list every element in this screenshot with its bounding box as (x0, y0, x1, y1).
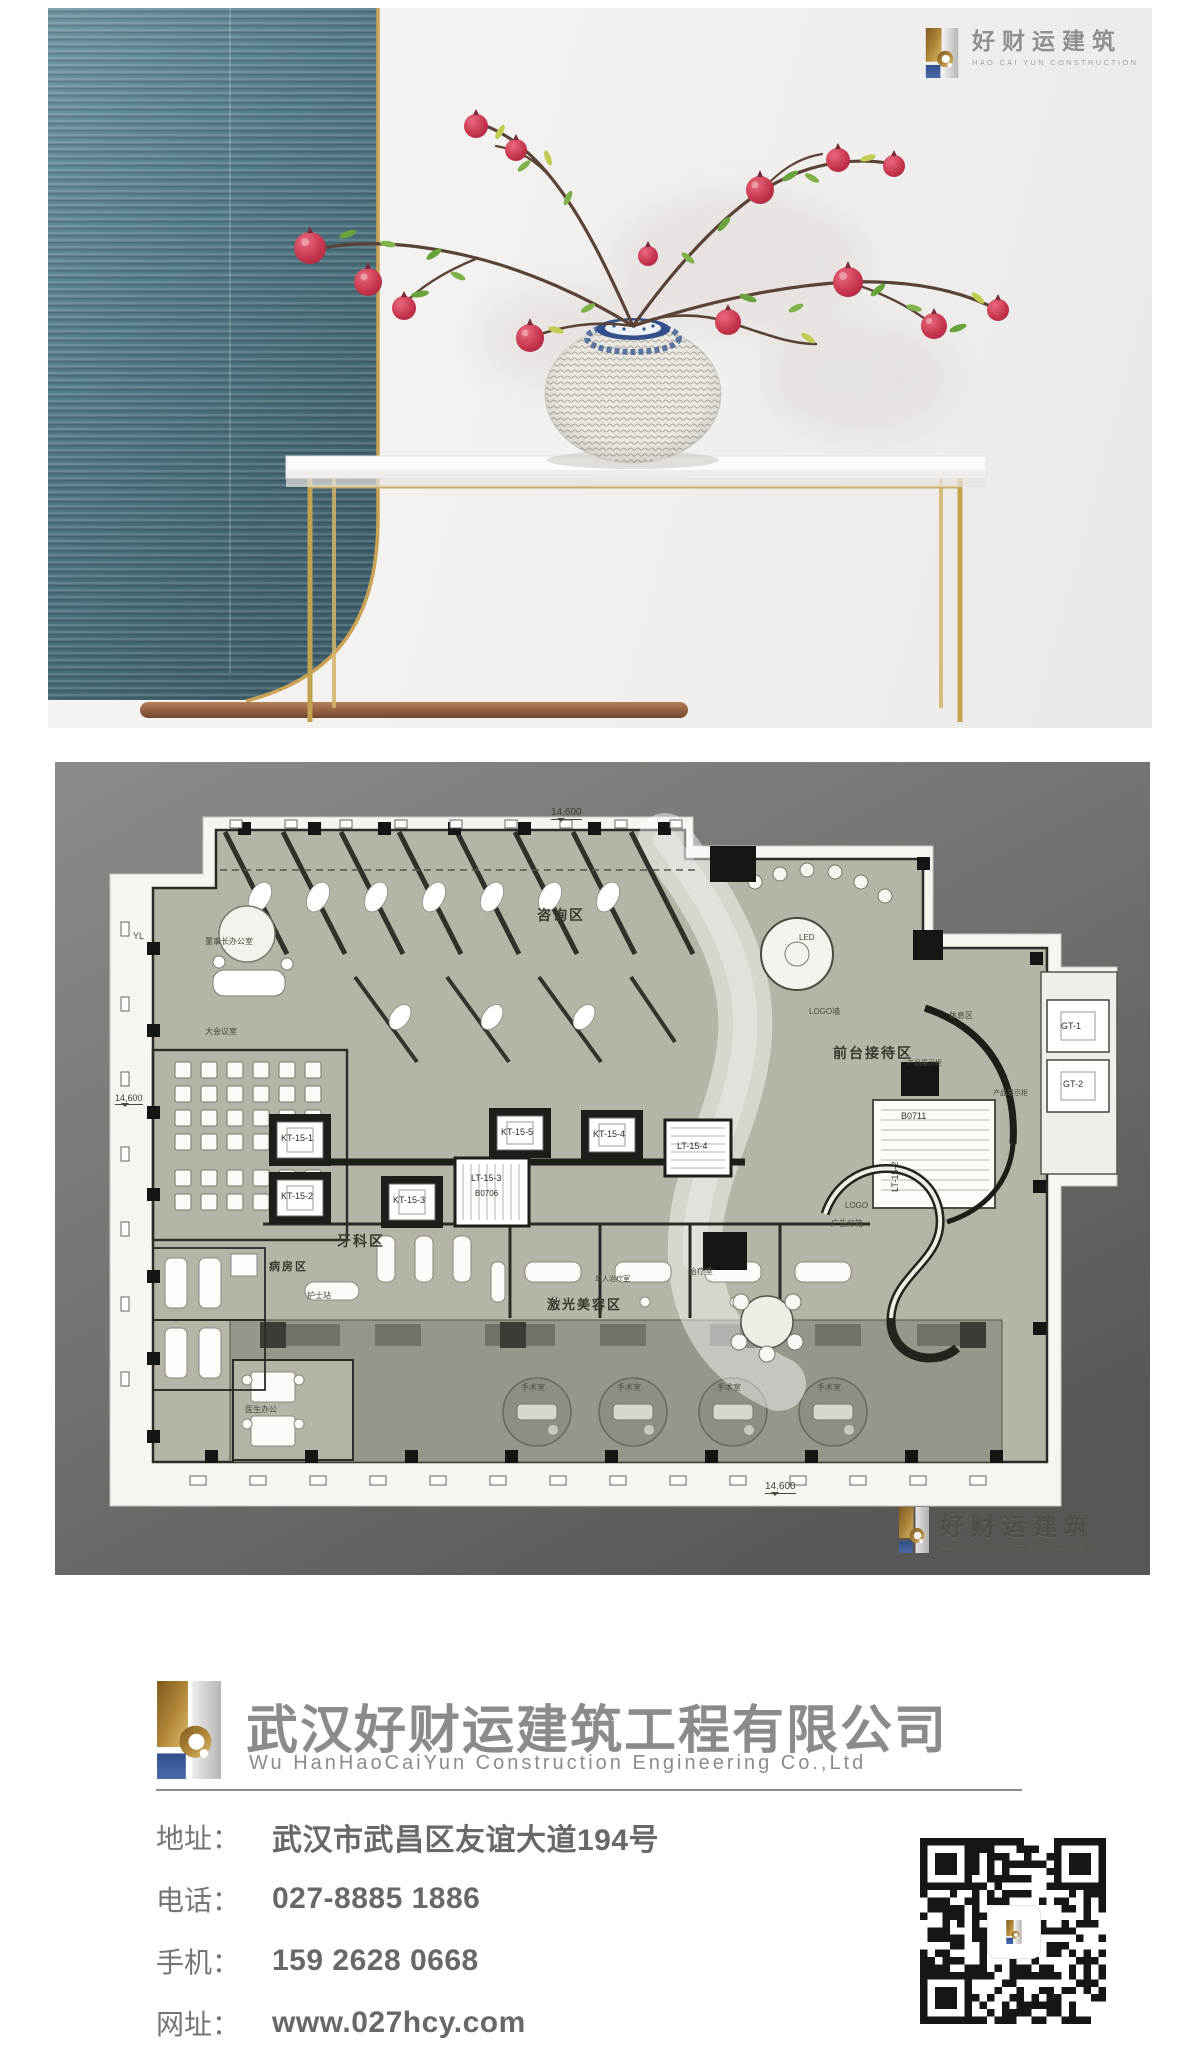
address-label: 地址： (156, 1817, 272, 1857)
plan-label: YL (133, 932, 144, 941)
contact-row-phone: 电话： 027-8885 1886 (156, 1868, 659, 1930)
plan-label: 咨询区 (537, 908, 585, 922)
plan-label: B0711 (901, 1112, 926, 1121)
contact-list: 地址： 武汉市武昌区友谊大道194号 电话： 027-8885 1886 手机：… (156, 1806, 659, 2054)
contact-row-mobile: 手机： 159 2628 0668 (156, 1930, 659, 1992)
plan-label: 手术室 (521, 1384, 545, 1392)
plan-label: KT-15-5 (501, 1128, 533, 1137)
plan-label: KT-15-1 (281, 1134, 313, 1143)
plan-label: 休息区 (949, 1012, 973, 1020)
brand-mark-icon (922, 28, 962, 78)
wechat-qr-code (920, 1838, 1106, 2024)
address-value: 武汉市武昌区友谊大道194号 (272, 1815, 659, 1859)
plan-label: 手术室 (817, 1384, 841, 1392)
plan-label: 大会议室 (205, 1028, 237, 1036)
brand-mark-icon (897, 1507, 931, 1553)
plan-label: 治疗室 (689, 1268, 713, 1276)
plan-label: GT-2 (1063, 1080, 1083, 1089)
plan-label: 广告灯箱 (831, 1220, 863, 1228)
qr-center-logo (987, 1905, 1041, 1959)
header-logo: 好财运建筑 HAO CAI YUN CONSTRUCTION (922, 28, 1138, 78)
plan-watermark-logo: 好财运建筑 HAO CAI YUN CONSTRUCTION (897, 1507, 1095, 1553)
plan-label: KT-15-3 (393, 1196, 425, 1205)
plan-label: KT-15-4 (593, 1130, 625, 1139)
plan-label: 14.600 (765, 1482, 796, 1494)
plan-label: LT-15-2 (891, 1162, 900, 1192)
watermark-name-cn: 好财运建筑 (940, 1507, 1095, 1542)
plan-label: LOGO墙 (809, 1008, 840, 1016)
plan-label: LT-15-3 (471, 1174, 501, 1183)
plan-label: 手术室 (717, 1384, 741, 1392)
plan-label: 医生办公 (245, 1406, 277, 1414)
mobile-value: 159 2628 0668 (272, 1944, 479, 1978)
watermark-name-en: HAO CAI YUN CONSTRUCTION (940, 1544, 1095, 1551)
plan-labels-layer: 14,60014,60014.600咨询区前台接待区牙科区病房区激光美容区董事长… (55, 762, 1150, 1575)
phone-label: 电话： (156, 1879, 272, 1919)
footer-brand-mark-icon (156, 1681, 222, 1779)
plan-label: 前台接待区 (833, 1046, 913, 1060)
contact-row-website: 网址： www.027hcy.com (156, 1992, 659, 2054)
contact-row-address: 地址： 武汉市武昌区友谊大道194号 (156, 1806, 659, 1868)
plan-label: LOGO (845, 1202, 868, 1210)
brand-mark-icon (1006, 1920, 1022, 1944)
plan-label: 病房区 (269, 1262, 308, 1273)
plan-label: LT-15-4 (677, 1142, 707, 1151)
plan-label: 单人治疗室 (595, 1276, 630, 1283)
plan-label: GT-1 (1061, 1022, 1081, 1031)
website-value: www.027hcy.com (272, 2006, 526, 2040)
website-label: 网址： (156, 2003, 272, 2043)
plan-label: 激光美容区 (547, 1298, 622, 1311)
plan-label: 董事长办公室 (205, 938, 253, 946)
company-name-en: Wu HanHaoCaiYun Construction Engineering… (249, 1752, 866, 1775)
brand-name-en: HAO CAI YUN CONSTRUCTION (972, 58, 1138, 67)
plan-label: B0706 (475, 1190, 498, 1198)
console-table (286, 456, 986, 722)
footer-divider (156, 1789, 1022, 1791)
plan-label: 护士站 (307, 1292, 331, 1300)
plan-label: 14,600 (115, 1094, 143, 1105)
plan-label: LED (799, 934, 815, 942)
plan-label: 牙科区 (337, 1234, 385, 1248)
plan-label: 14,600 (551, 808, 582, 820)
hero-photo: 好财运建筑 HAO CAI YUN CONSTRUCTION (48, 8, 1152, 728)
mobile-label: 手机： (156, 1941, 272, 1981)
plan-label: 手术室 (617, 1384, 641, 1392)
phone-value: 027-8885 1886 (272, 1882, 480, 1916)
hero-photo-illustration (48, 8, 1152, 728)
brand-name-cn: 好财运建筑 (972, 28, 1138, 56)
plan-label: KT-15-2 (281, 1192, 313, 1201)
plan-label: 产品展示柜 (993, 1090, 1028, 1097)
copper-floor-trim (140, 702, 688, 718)
plan-label: 产品展示柜 (907, 1060, 942, 1067)
floor-plan-panel: 14,60014,60014.600咨询区前台接待区牙科区病房区激光美容区董事长… (55, 762, 1150, 1575)
flyer-page: { "brand": { "logo_cn": "好财运建筑", "logo_e… (0, 0, 1200, 2059)
